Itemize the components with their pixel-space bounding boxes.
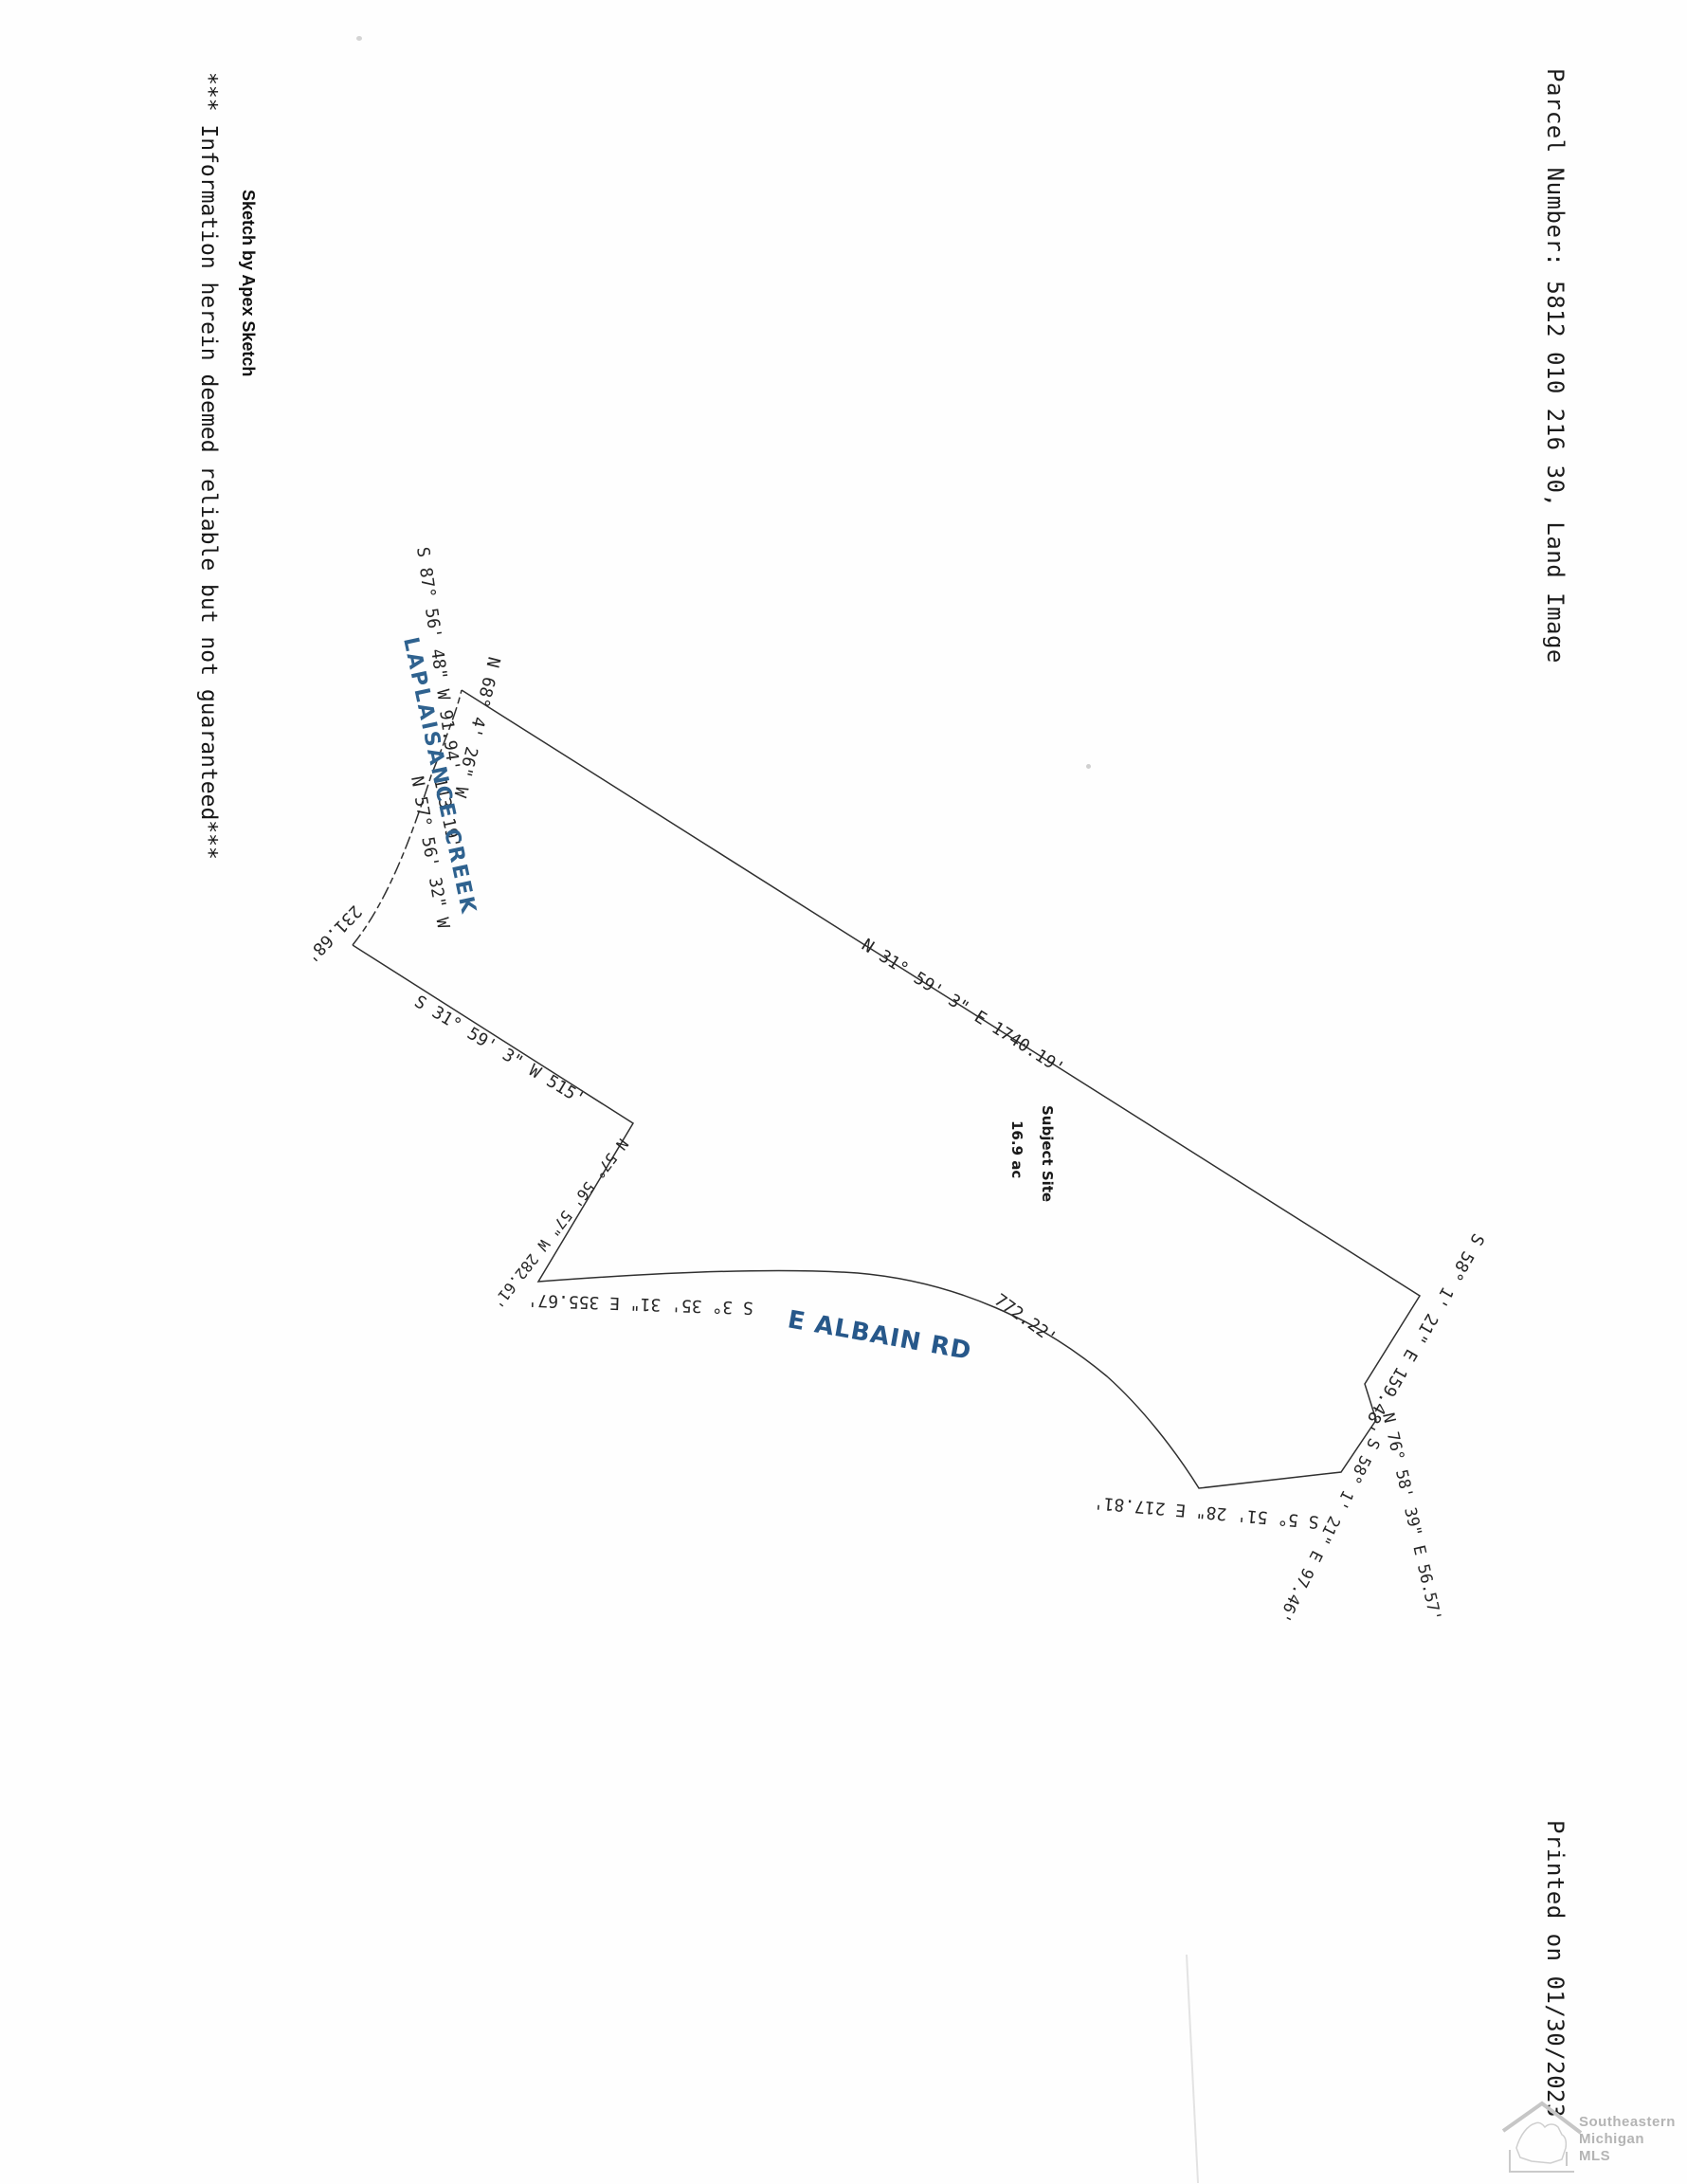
distance-road: 772.22' bbox=[990, 1290, 1061, 1349]
subject-site-label: Subject Site bbox=[1039, 1105, 1056, 1202]
logo-line-3: MLS bbox=[1579, 2148, 1676, 2165]
distance-creek-4: 231.68' bbox=[301, 901, 366, 967]
parcel-sketch: N 31° 59' 3" E 1740.19' S 87° 56' 48" W … bbox=[0, 0, 1687, 2184]
bearing-south-515: S 31° 59' 3" W 515' bbox=[410, 992, 588, 1109]
mls-logo-wordmark: Southeastern Michigan MLS bbox=[1579, 2114, 1676, 2165]
bearing-ne-56: N 76° 58' 39" E 56.57' bbox=[1378, 1411, 1444, 1624]
bearing-south-355: S 3° 35' 31" E 355.67' bbox=[527, 1290, 753, 1318]
logo-line-2: Michigan bbox=[1579, 2131, 1676, 2148]
logo-michigan-icon bbox=[1516, 2122, 1566, 2163]
scan-speck bbox=[356, 36, 362, 41]
scan-fold-artifact bbox=[1187, 1955, 1198, 2183]
logo-roof-icon bbox=[1503, 2103, 1581, 2133]
mls-logo-graphic bbox=[1503, 2103, 1581, 2172]
bearing-east-main: N 31° 59' 3" E 1740.19' bbox=[858, 936, 1067, 1080]
scanned-survey-page: Parcel Number: 5812 010 216 30, Land Ima… bbox=[0, 0, 1687, 2184]
bearing-west-282: N 57° 56' 57" W 282.61' bbox=[488, 1136, 631, 1312]
bearing-se-159: S 58° 1' 21" E 159.48' bbox=[1357, 1230, 1487, 1436]
bearing-se-217: S 5° 51' 28" E 217.81' bbox=[1093, 1492, 1319, 1532]
logo-line-1: Southeastern bbox=[1579, 2114, 1676, 2131]
road-name-label: E ALBAIN RD bbox=[786, 1305, 974, 1366]
scan-speck bbox=[1086, 764, 1091, 769]
site-acreage-label: 16.9 ac bbox=[1008, 1120, 1025, 1178]
parcel-boundary-line bbox=[353, 690, 1420, 1488]
